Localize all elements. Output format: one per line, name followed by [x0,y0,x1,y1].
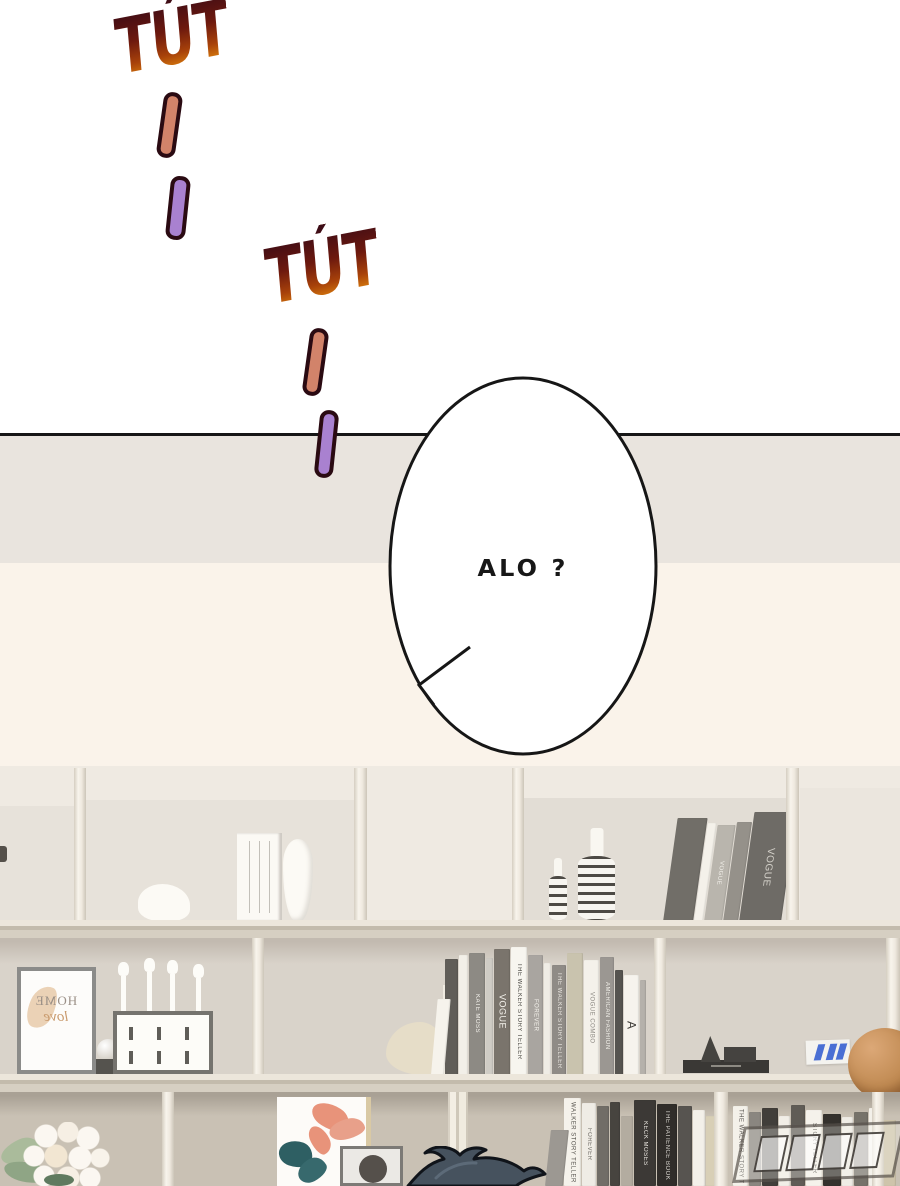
shelf-board [0,920,900,938]
model-block [724,1047,756,1062]
book-spine: FOREVER [582,1103,596,1186]
watermark-logo [732,1121,900,1183]
book-spine: THE WALKER STORY TELLER [552,965,566,1075]
book-spine: THE PATIENCE BOOK [657,1104,677,1186]
book-spine: KECK MOSES [634,1100,656,1186]
framed-print: HOME love [17,967,96,1074]
ring-dash-icon [301,327,329,397]
book-spine: VOGUE COMBO [584,960,599,1075]
book-spine [486,958,493,1075]
shelf-post [162,1092,174,1186]
leaning-books-top: VOGUEVOGUE [663,810,783,922]
white-book-stack [237,833,282,921]
shelf-post [354,768,367,922]
print-word-2: love [25,1009,87,1026]
book-spine [610,1102,620,1186]
striped-vase-tall [578,828,615,920]
book-spine: THE WALKER STORY TELLER [511,947,527,1075]
book-spine [615,970,623,1075]
shelf-post [654,938,666,1076]
candle [147,972,152,1012]
shelf-post [512,768,524,922]
book-spine [567,953,583,1075]
bottom-shelf-books-left: WALKER STORY TELLERFOREVERKECK MOSESTHE … [545,1096,717,1186]
candle-holder-box [113,1011,213,1074]
book-spine [693,1110,705,1186]
book-spine [678,1106,692,1186]
ring-dash-icon [155,91,183,159]
leaf [44,1174,74,1186]
shelf-post [714,1092,728,1186]
book-spine: A [624,975,639,1075]
shelf-back-panel [0,806,76,922]
sfx-tut-2: TÚT [262,214,382,323]
bird-sculpture [138,884,190,921]
shelf-object [0,846,7,862]
shelf-post [74,768,86,922]
shelf-post [252,938,264,1076]
speech-text: ALO ? [383,556,664,582]
character-hair [406,1146,556,1186]
mini-canvas-card [806,1039,851,1065]
striped-vase-small [549,858,567,920]
comic-page: TÚT TÚT VOGUEVOGUE HOME love [0,0,900,1186]
shelf-board [0,1074,900,1092]
candle [196,978,201,1012]
candle [121,976,126,1012]
book-spine: AMERICAN FASHION [600,957,614,1075]
small-framed-art [340,1146,403,1186]
candle [170,974,175,1012]
shelf-post [786,768,799,922]
book-spine: KATE MOSS [469,953,485,1075]
book-spine: VOGUE [494,949,510,1075]
book-spine [597,1106,609,1186]
book-spine [459,955,468,1075]
book-spine [640,980,646,1075]
shelf-back-panel [800,788,900,922]
book-spine [621,1116,633,1186]
print-word-1: HOME [25,993,87,1009]
shelf-back-panel [86,800,354,922]
ring-dash-icon [165,175,192,241]
book-spine: FOREVER [528,955,543,1075]
sfx-tut-1: TÚT [112,0,232,93]
book-spine [544,963,551,1075]
middle-shelf-books: KATE MOSSVOGUETHE WALKER STORY TELLERFOR… [431,947,649,1075]
